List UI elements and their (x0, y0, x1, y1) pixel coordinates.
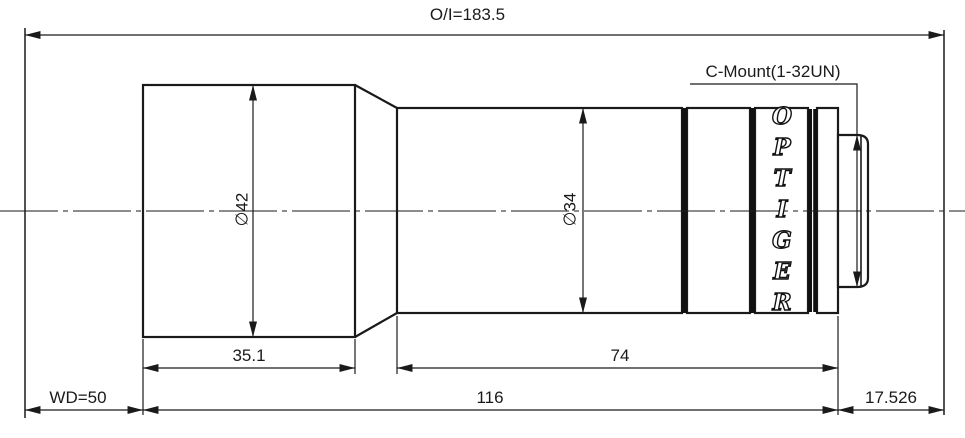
front-diameter-label: ∅42 (234, 150, 251, 270)
front-length-label: 35.1 (199, 347, 299, 364)
working-distance-label: WD=50 (28, 389, 128, 406)
technical-drawing: O/I=183.5 C-Mount(1-32UN) ∅42 ∅34 35.1 7… (0, 0, 965, 438)
body-length-label: 116 (440, 389, 540, 406)
brand-logo-text: OPTIGER (758, 113, 806, 309)
barrel-length-label: 74 (570, 347, 670, 364)
cmount-label: C-Mount(1-32UN) (683, 63, 863, 80)
flange-distance-label: 17.526 (841, 389, 941, 406)
barrel-diameter-label: ∅34 (562, 150, 579, 270)
overall-dimension-label: O/I=183.5 (375, 6, 560, 23)
